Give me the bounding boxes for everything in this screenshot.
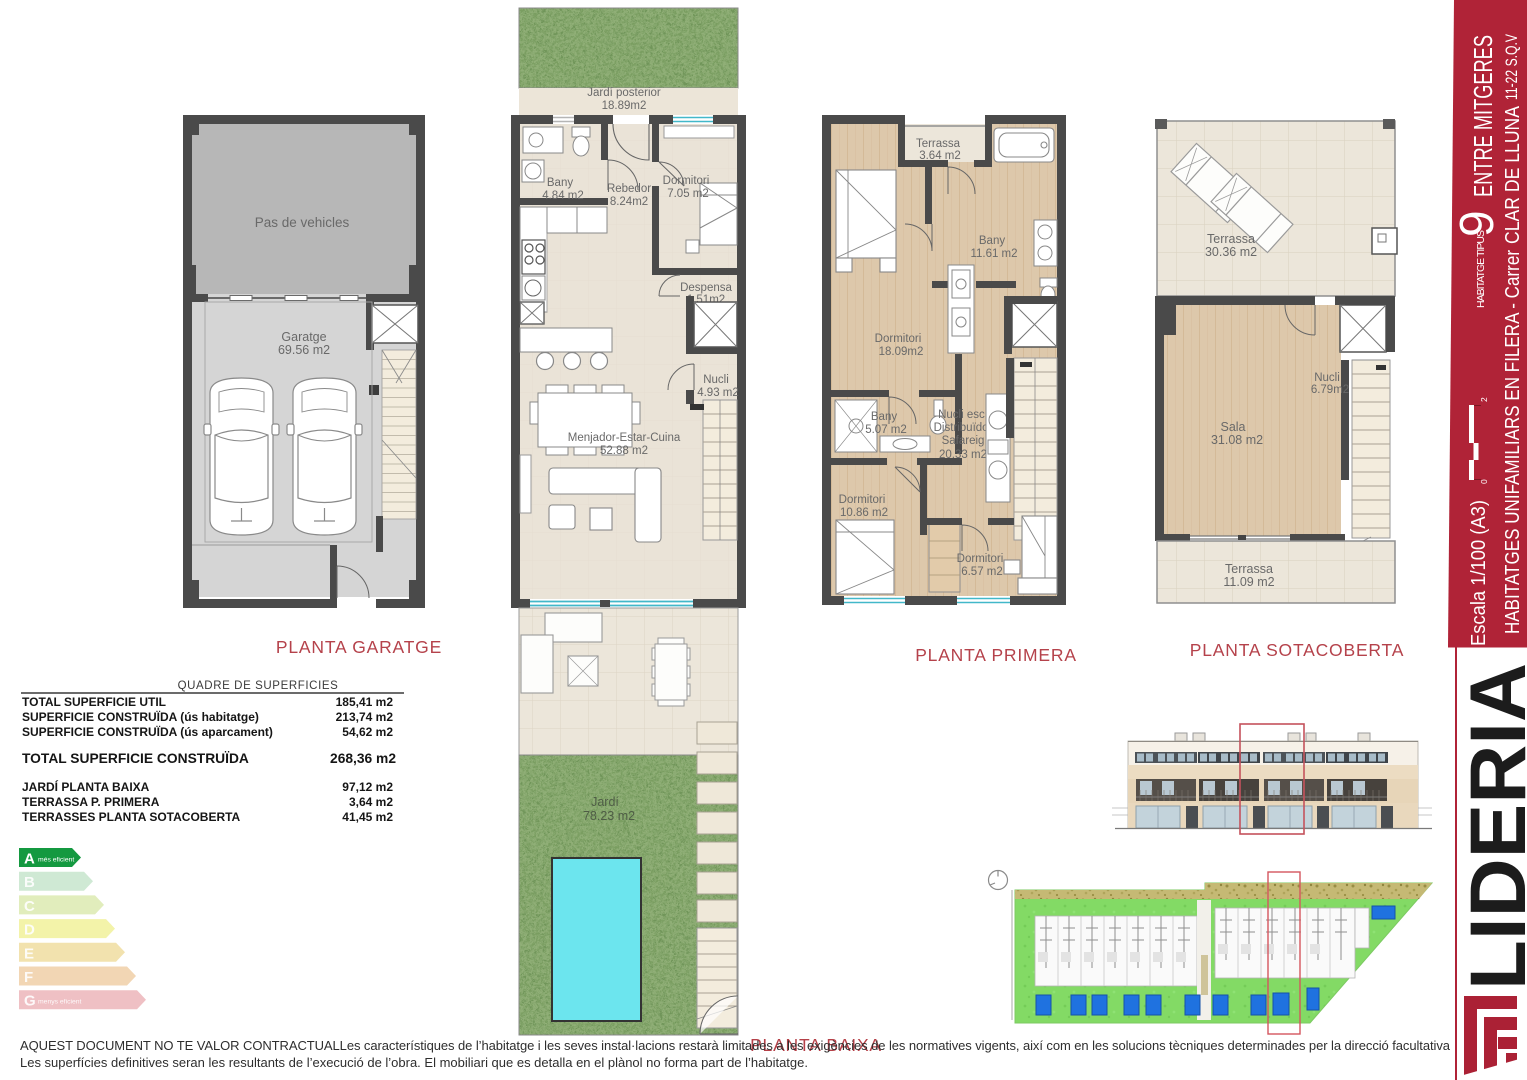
svg-text:31.08 m2: 31.08 m2 [1211, 433, 1263, 447]
svg-text:Rebedor: Rebedor [607, 183, 651, 195]
svg-text:41,45 m2: 41,45 m2 [342, 810, 393, 824]
svg-text:TERRASSA P. PRIMERA: TERRASSA P. PRIMERA [22, 795, 160, 809]
svg-text:TERRASSES PLANTA SOTACOBERTA: TERRASSES PLANTA SOTACOBERTA [22, 810, 241, 824]
svg-text:97,12 m2: 97,12 m2 [342, 780, 393, 794]
svg-text:213,74 m2: 213,74 m2 [336, 710, 394, 724]
svg-text:Nucli: Nucli [1314, 372, 1340, 384]
svg-text:E: E [24, 945, 34, 962]
svg-text:Nucli esc.: Nucli esc. [938, 409, 988, 421]
svg-text:Terrassa: Terrassa [916, 138, 961, 150]
svg-text:TOTAL SUPERFICIE CONSTRUÏDA: TOTAL SUPERFICIE CONSTRUÏDA [22, 750, 249, 766]
svg-text:Les superfícies definitives se: Les superfícies definitives seran les re… [20, 1055, 808, 1070]
svg-text:B: B [24, 874, 35, 891]
svg-text:AQUEST DOCUMENT NO TE VALOR CO: AQUEST DOCUMENT NO TE VALOR CONTRACTUALL… [20, 1038, 1451, 1053]
svg-text:CLAR DE LLUNA: CLAR DE LLUNA [1501, 106, 1524, 244]
svg-text:52.88 m2: 52.88 m2 [600, 445, 648, 457]
svg-text:4.84 m2: 4.84 m2 [542, 190, 584, 202]
svg-text:Menjador-Estar-Cuina: Menjador-Estar-Cuina [568, 432, 681, 444]
svg-text:11.09 m2: 11.09 m2 [1223, 575, 1274, 589]
svg-text:Dormitori: Dormitori [875, 333, 922, 345]
svg-text:Dormitori: Dormitori [839, 494, 886, 506]
svg-text:Terrassa: Terrassa [1225, 562, 1273, 576]
svg-text:menys eficient: menys eficient [38, 999, 82, 1006]
svg-text:PLANTA PRIMERA: PLANTA PRIMERA [915, 645, 1077, 665]
svg-text:C: C [24, 898, 35, 915]
svg-text:més eficient: més eficient [38, 857, 74, 864]
svg-text:20.33 m2: 20.33 m2 [939, 449, 987, 461]
svg-text:HABITATGES UNIFAMILIARS EN FIL: HABITATGES UNIFAMILIARS EN FILERA - Carr… [1501, 250, 1524, 634]
svg-text:30.36 m2: 30.36 m2 [1205, 245, 1257, 259]
svg-text:78.23 m2: 78.23 m2 [583, 809, 635, 823]
svg-text:18.09m2: 18.09m2 [879, 346, 924, 358]
svg-text:LIDERIA: LIDERIA [1453, 663, 1527, 990]
svg-text:Terrassa: Terrassa [1207, 232, 1255, 246]
svg-text:11-22 S.Q.V: 11-22 S.Q.V [1503, 34, 1521, 100]
svg-text:54,62 m2: 54,62 m2 [342, 725, 393, 739]
svg-text:HABITATGE TIPUS: HABITATGE TIPUS [1475, 230, 1487, 308]
svg-text:7.05 m2: 7.05 m2 [667, 188, 709, 200]
svg-text:4.93 m2: 4.93 m2 [697, 387, 739, 399]
svg-text:Dormitori: Dormitori [663, 175, 710, 187]
svg-text:8.24m2: 8.24m2 [610, 196, 648, 208]
svg-text:3,64 m2: 3,64 m2 [349, 795, 393, 809]
svg-text:ENTRE MITGERES: ENTRE MITGERES [1468, 35, 1498, 197]
svg-text:QUADRE DE SUPERFICIES: QUADRE DE SUPERFICIES [178, 680, 339, 692]
svg-text:D: D [24, 922, 35, 939]
svg-text:G: G [24, 993, 36, 1010]
svg-text:69.56 m2: 69.56 m2 [278, 343, 330, 357]
svg-text:Escala 1/100 (A3): Escala 1/100 (A3) [1468, 500, 1490, 646]
svg-text:Distribuïdor: Distribuïdor [934, 422, 993, 434]
svg-text:Jardí: Jardí [591, 795, 619, 809]
svg-text:18.89m2: 18.89m2 [602, 100, 647, 112]
svg-text:Despensa: Despensa [680, 282, 732, 294]
svg-text:Nucli: Nucli [703, 374, 729, 386]
svg-text:10.86 m2: 10.86 m2 [840, 507, 888, 519]
svg-text:6.57 m2: 6.57 m2 [961, 566, 1003, 578]
svg-text:SUPERFICIE CONSTRUÏDA (ús apar: SUPERFICIE CONSTRUÏDA (ús aparcament) [22, 724, 273, 739]
svg-text:268,36 m2: 268,36 m2 [330, 751, 396, 766]
svg-text:JARDÍ PLANTA BAIXA: JARDÍ PLANTA BAIXA [22, 779, 150, 794]
svg-text:F: F [24, 969, 33, 986]
svg-text:Sala: Sala [1220, 420, 1245, 434]
svg-text:0: 0 [1479, 479, 1489, 484]
svg-text:6.79m2: 6.79m2 [1311, 384, 1349, 396]
svg-text:Dormitori: Dormitori [957, 553, 1004, 565]
svg-text:5.07 m2: 5.07 m2 [865, 424, 907, 436]
svg-text:Bany: Bany [979, 235, 1005, 247]
svg-text:Safareig: Safareig [942, 435, 985, 447]
svg-text:Pas de vehicles: Pas de vehicles [255, 215, 350, 230]
svg-text:A: A [24, 851, 35, 868]
svg-text:2: 2 [1479, 397, 1489, 402]
svg-text:9: 9 [1451, 210, 1504, 237]
svg-text:Bany: Bany [871, 411, 897, 423]
svg-text:SUPERFICIE CONSTRUÏDA (ús habi: SUPERFICIE CONSTRUÏDA (ús habitatge) [22, 709, 259, 724]
svg-text:185,41 m2: 185,41 m2 [336, 695, 394, 709]
svg-text:Jardí posterior: Jardí posterior [587, 87, 661, 99]
svg-text:11.61 m2: 11.61 m2 [970, 248, 1017, 260]
svg-text:TOTAL SUPERFICIE UTIL: TOTAL SUPERFICIE UTIL [22, 695, 166, 709]
svg-text:Garatge: Garatge [281, 330, 326, 344]
svg-text:PLANTA SOTACOBERTA: PLANTA SOTACOBERTA [1190, 640, 1404, 660]
svg-text:Bany: Bany [547, 177, 573, 189]
svg-text:PLANTA GARATGE: PLANTA GARATGE [276, 637, 442, 657]
